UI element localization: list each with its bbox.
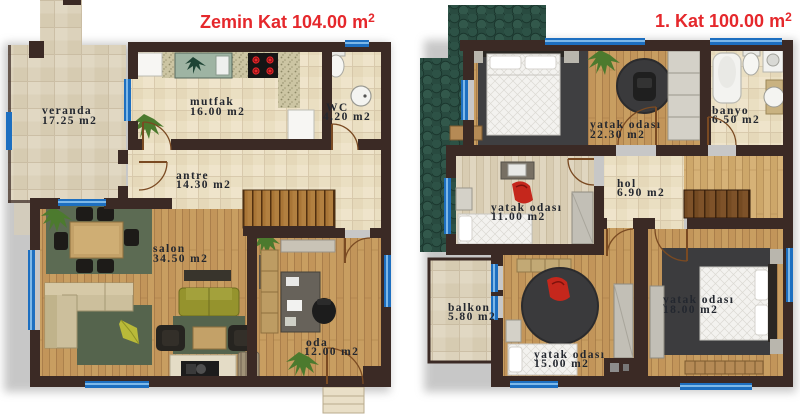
svg-text:22.30 m2: 22.30 m2	[590, 129, 645, 141]
svg-text:5.80 m2: 5.80 m2	[448, 311, 496, 323]
svg-text:16.00 m2: 16.00 m2	[190, 106, 245, 118]
svg-text:6.90 m2: 6.90 m2	[617, 187, 665, 199]
svg-text:11.00 m2: 11.00 m2	[491, 211, 546, 223]
svg-text:14.30 m2: 14.30 m2	[176, 179, 231, 191]
svg-text:Zemin Kat 104.00 m2: Zemin Kat 104.00 m2	[200, 11, 375, 32]
svg-text:1. Kat 100.00 m2: 1. Kat 100.00 m2	[655, 10, 792, 31]
svg-text:17.25 m2: 17.25 m2	[42, 115, 97, 127]
svg-text:6.50 m2: 6.50 m2	[712, 114, 760, 126]
svg-text:15.00 m2: 15.00 m2	[534, 358, 589, 370]
svg-text:12.00 m2: 12.00 m2	[304, 346, 359, 358]
svg-text:4.20 m2: 4.20 m2	[323, 111, 371, 123]
svg-text:18.00 m2: 18.00 m2	[663, 304, 718, 316]
svg-text:34.50 m2: 34.50 m2	[153, 253, 208, 265]
